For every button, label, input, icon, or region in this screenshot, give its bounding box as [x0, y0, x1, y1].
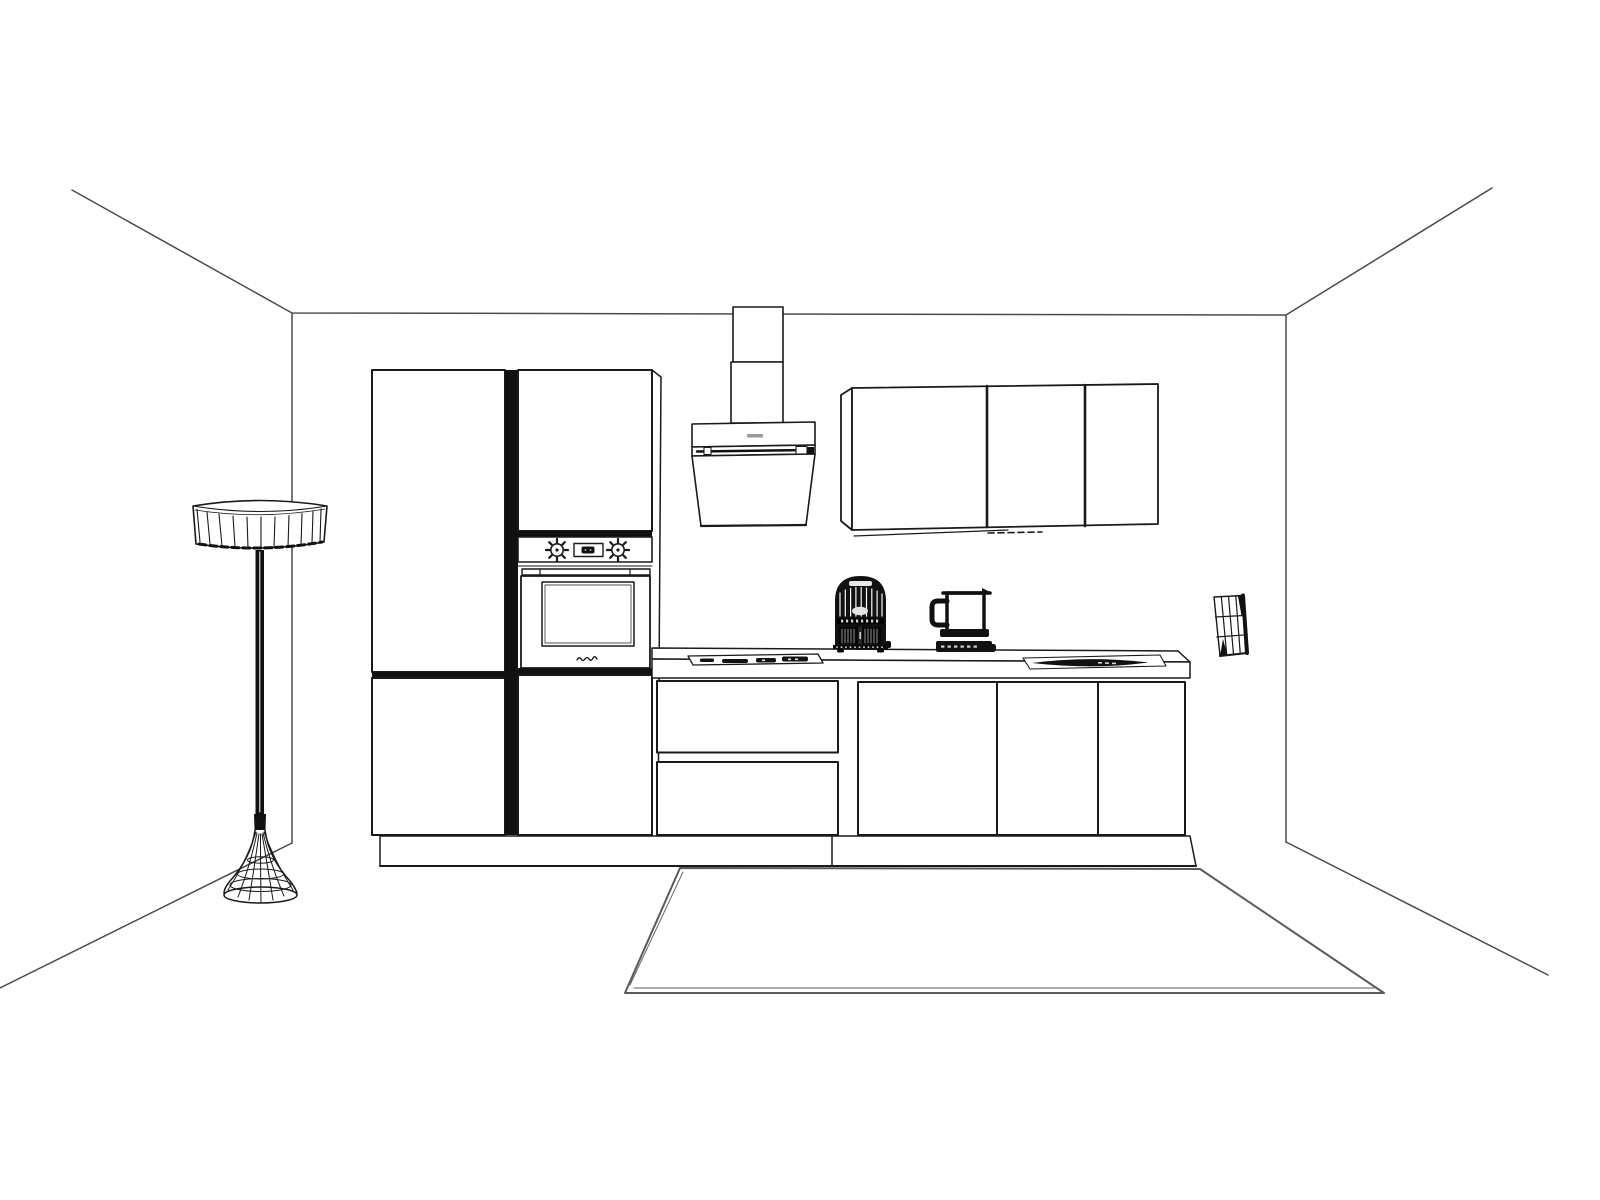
tall-cabinet-right	[518, 370, 661, 835]
base-cabinets	[858, 682, 1185, 835]
lamp-shade	[193, 501, 327, 549]
hood-front-panel	[692, 454, 815, 526]
tall-cabinet-left	[372, 370, 505, 835]
base-door-1	[858, 682, 997, 835]
range-hood	[692, 422, 815, 526]
tall-left-upper-door	[372, 370, 505, 672]
wall-cabinets	[841, 384, 1158, 536]
oven-knob-left	[546, 539, 568, 561]
drawer-bottom	[657, 762, 838, 835]
tall-right-lower-door	[518, 675, 652, 835]
drawer-top	[657, 681, 838, 753]
gas-hob	[688, 654, 823, 665]
hood-duct	[731, 307, 783, 423]
base-door-3	[1098, 682, 1185, 835]
wall-sconce	[1214, 596, 1247, 657]
tall-left-lower-door	[372, 678, 505, 835]
paper-background	[0, 0, 1600, 1200]
oven-handle	[522, 569, 650, 575]
hood-brand-mark	[747, 434, 763, 438]
wall-cabinet-side-panel	[841, 388, 852, 530]
plinth	[380, 836, 1196, 866]
oven-knob-right	[607, 539, 629, 561]
base-door-2	[997, 682, 1098, 835]
air-fryer	[833, 576, 891, 653]
tall-right-upper-door	[518, 370, 652, 531]
cooktop-right	[1023, 655, 1166, 669]
built-in-oven	[518, 537, 652, 668]
wall-cabinet-front	[852, 384, 1158, 530]
kitchen-line-drawing	[0, 0, 1600, 1200]
tall-cabinet-gap	[505, 370, 518, 835]
